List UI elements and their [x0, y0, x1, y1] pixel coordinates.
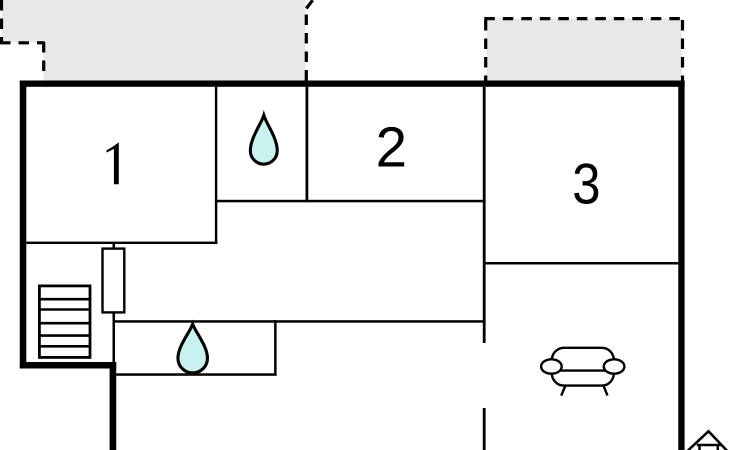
svg-text:2: 2: [376, 115, 407, 178]
svg-text:3: 3: [572, 152, 600, 217]
